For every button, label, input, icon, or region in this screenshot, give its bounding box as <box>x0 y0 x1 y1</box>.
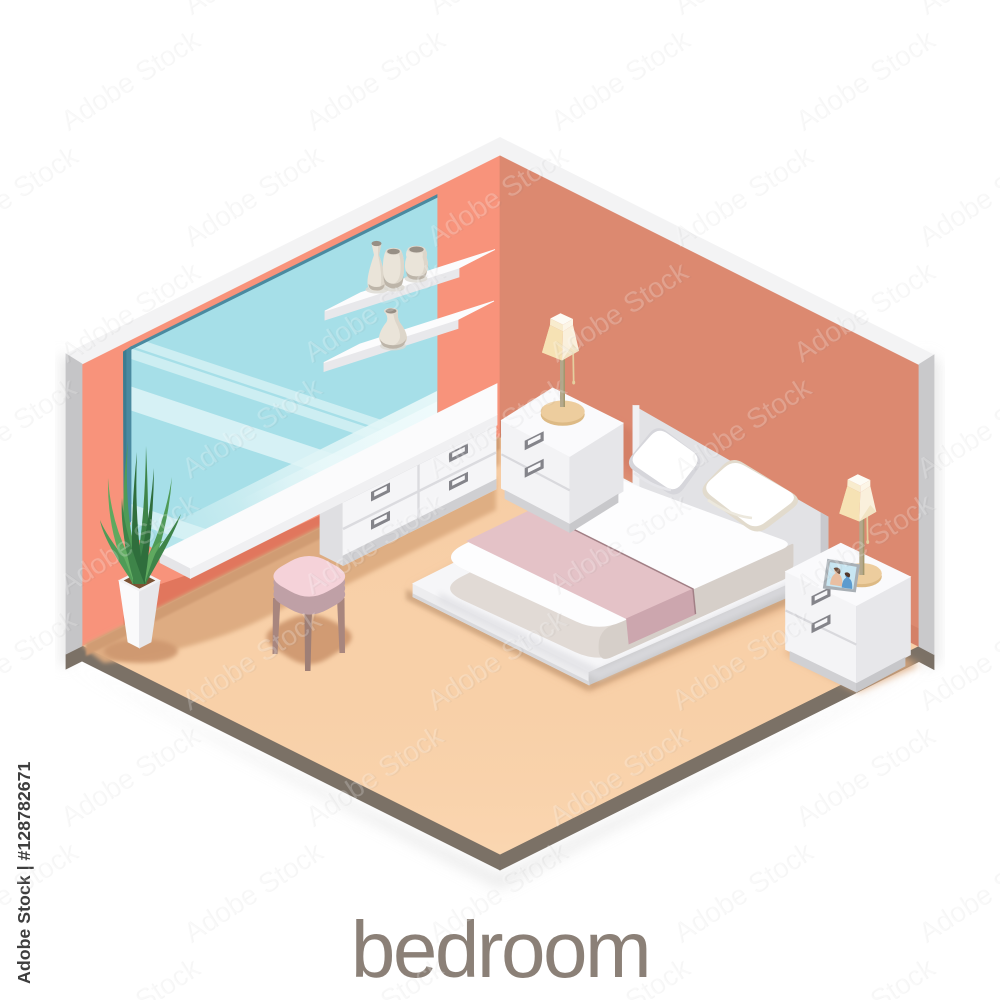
svg-text:Adobe Stock: Adobe Stock <box>666 139 817 252</box>
svg-text:Adobe Stock: Adobe Stock <box>176 835 327 948</box>
svg-text:Adobe Stock: Adobe Stock <box>0 0 84 20</box>
svg-text:Adobe Stock: Adobe Stock <box>0 0 82 20</box>
svg-text:Adobe Stock: Adobe Stock <box>543 23 694 136</box>
svg-text:Adobe Stock: Adobe Stock <box>788 23 939 136</box>
svg-text:Adobe Stock: Adobe Stock <box>53 23 204 136</box>
svg-text:Adobe Stock: Adobe Stock <box>298 23 449 136</box>
svg-text:Adobe Stock: Adobe Stock <box>53 719 204 832</box>
svg-text:Adobe Stock: Adobe Stock <box>0 139 82 252</box>
svg-text:Adobe Stock: Adobe Stock <box>666 835 817 948</box>
svg-text:Adobe Stock: Adobe Stock <box>788 719 939 832</box>
svg-text:Adobe Stock: Adobe Stock <box>0 835 82 948</box>
